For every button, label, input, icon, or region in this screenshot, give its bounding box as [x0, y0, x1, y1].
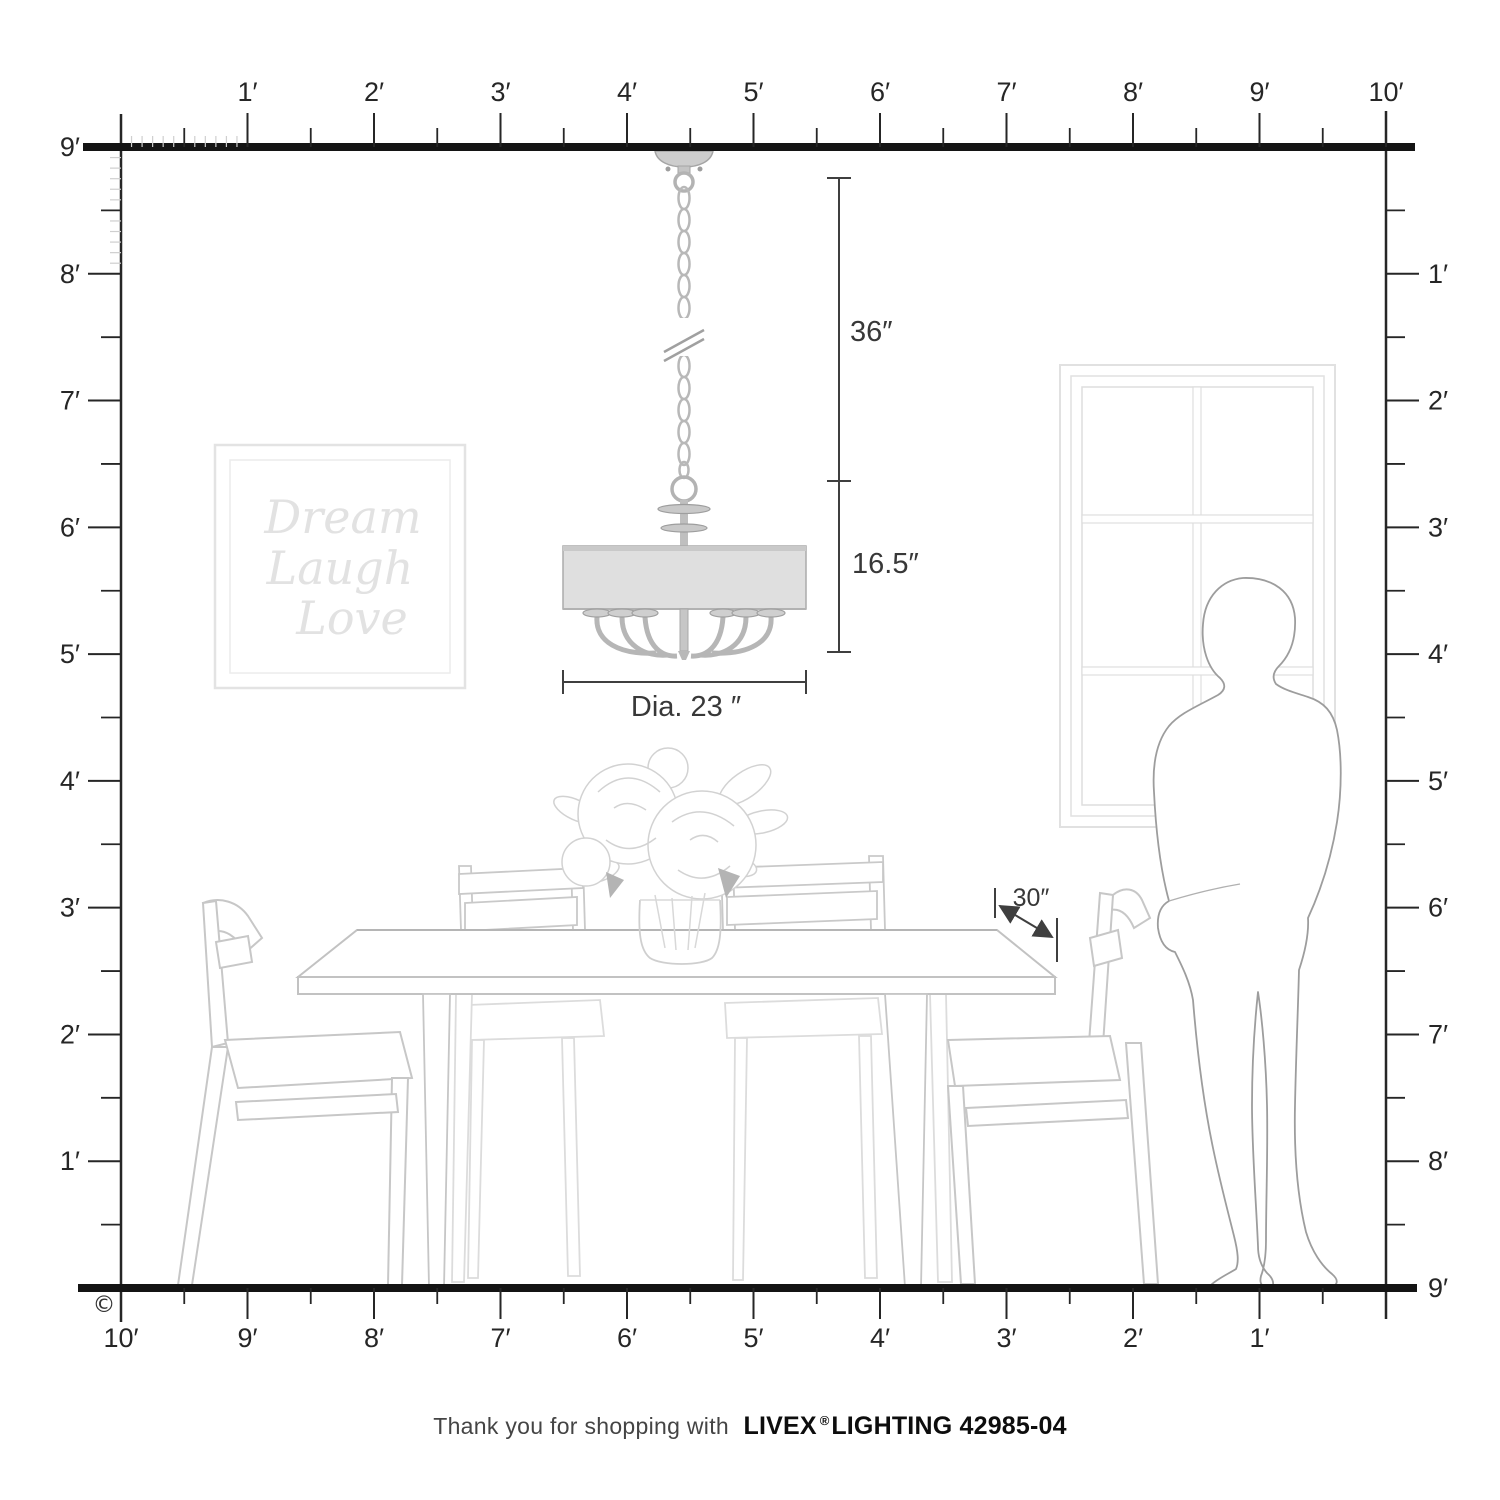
chair-seat: [225, 1032, 412, 1088]
footer-prefix: Thank you for shopping with: [433, 1413, 729, 1439]
chain-link: [679, 297, 690, 319]
chair-back-panel: [465, 897, 577, 931]
bobeche: [632, 609, 658, 617]
ruler-label: 9′: [60, 132, 80, 162]
ruler-label: 3′: [60, 893, 80, 923]
chair-leg: [859, 1036, 877, 1278]
ruler-label: 10′: [1368, 77, 1403, 107]
chair-seat: [468, 1000, 604, 1040]
ruler-label: 2′: [60, 1019, 80, 1049]
table-leg-rear-right: [930, 994, 952, 1282]
back-chair-right: [721, 856, 885, 1280]
chair-back-post: [1089, 893, 1113, 1045]
drum-shade: [563, 546, 806, 609]
wall-art-word-2: Laugh: [266, 541, 414, 595]
ruler-label: 2′: [1428, 386, 1448, 416]
window-rail-lower: [1082, 667, 1313, 675]
chain-link: [679, 253, 690, 275]
footer-brand: LIVEX: [743, 1412, 816, 1440]
registered-mark: ®: [820, 1413, 830, 1428]
ruler-label: 8′: [1123, 77, 1143, 107]
ruler-label: 1′: [1428, 259, 1448, 289]
ruler-label: 3′: [490, 77, 510, 107]
ruler-label: 1′: [1249, 1323, 1269, 1353]
ruler-label: 7′: [60, 386, 80, 416]
arm: [645, 617, 677, 656]
chair-headrest: [1110, 889, 1150, 928]
dining-table: [298, 930, 1055, 1287]
chair-back-panel: [727, 891, 877, 925]
chain-link: [679, 399, 690, 421]
ruler-label: 3′: [996, 1323, 1016, 1353]
ruler-label: 2′: [1123, 1323, 1143, 1353]
ruler-label: 6′: [1428, 893, 1448, 923]
chair-seat: [725, 998, 882, 1038]
chain-link: [679, 275, 690, 297]
chair-back-panel: [216, 936, 252, 968]
leaf-accent: [606, 872, 624, 898]
footer-note: Thank you for shopping with LIVEX®LIGHTI…: [0, 1412, 1500, 1441]
copyright-symbol: ©: [93, 1292, 116, 1318]
stem-disc-lower: [661, 524, 707, 532]
chain-link: [679, 355, 690, 377]
ruler-label: 4′: [617, 77, 637, 107]
scale-diagram: Dream Laugh Love: [0, 0, 1500, 1500]
ceiling-canopy: [655, 151, 713, 167]
wall-art-frame: Dream Laugh Love: [215, 445, 465, 688]
ruler-label: 5′: [743, 77, 763, 107]
ceiling-line: [83, 143, 1415, 151]
chandelier: [563, 151, 806, 660]
ruler-label: 1′: [60, 1146, 80, 1176]
bobeche: [757, 609, 785, 617]
table-top: [298, 930, 1055, 977]
diagram-svg: Dream Laugh Love: [0, 0, 1500, 1500]
dim-label-clearance: 30″: [1013, 884, 1050, 912]
drum-shade-top-band: [563, 546, 806, 551]
center-stem-lower: [680, 609, 688, 651]
flower-bloom-small: [562, 838, 610, 886]
ruler-label: 9′: [1249, 77, 1269, 107]
ruler-label: 2′: [364, 77, 384, 107]
ruler-label: 8′: [1428, 1146, 1448, 1176]
wall-art-word-1: Dream: [263, 490, 421, 544]
ruler-label: 6′: [60, 512, 80, 542]
flower-bloom-right: [648, 791, 756, 899]
stem-disc-upper: [658, 505, 710, 514]
chair-back-panel: [1090, 930, 1122, 966]
ruler-label: 8′: [364, 1323, 384, 1353]
ruler-label: 4′: [1428, 639, 1448, 669]
chair-stretcher: [236, 1094, 398, 1120]
table-leg-front-left: [423, 994, 450, 1287]
back-chairs: [459, 856, 885, 1280]
ruler-label: 8′: [60, 259, 80, 289]
ruler-label: 7′: [1428, 1019, 1448, 1049]
ruler-label: 1′: [237, 77, 257, 107]
dim-label-chain-drop: 36″: [850, 316, 893, 348]
stem-finial: [678, 651, 690, 660]
window-rail-upper: [1082, 515, 1313, 523]
ruler-label: 7′: [490, 1323, 510, 1353]
chain-link: [679, 209, 690, 231]
chain-link: [679, 231, 690, 253]
footer-product-code: LIGHTING 42985-04: [831, 1412, 1066, 1440]
ruler-label: 7′: [996, 77, 1016, 107]
chair-leg: [562, 1038, 580, 1276]
bobeche: [732, 609, 760, 617]
table-leg-front-right: [885, 994, 927, 1287]
ruler-label: 6′: [870, 77, 890, 107]
chair-leg: [733, 1038, 747, 1280]
ruler-label: 9′: [237, 1323, 257, 1353]
hang-loop: [675, 173, 693, 191]
ruler-label: 5′: [60, 639, 80, 669]
fixture-loop: [672, 477, 696, 501]
dim-label-diameter: Dia. 23 ″: [631, 691, 741, 723]
chain-link: [679, 377, 690, 399]
back-chair-left: [459, 862, 604, 1278]
dim-label-fixture-height: 16.5″: [852, 548, 919, 580]
ruler-label: 3′: [1428, 512, 1448, 542]
arm: [691, 617, 723, 656]
wall-art-word-3: Love: [295, 591, 407, 645]
ruler-label: 10′: [103, 1323, 138, 1353]
bobeche: [583, 609, 611, 617]
chair-stretcher: [966, 1100, 1128, 1126]
ruler-label: 4′: [870, 1323, 890, 1353]
floor-line: [78, 1284, 1417, 1292]
ruler-label: 5′: [743, 1323, 763, 1353]
canopy-screw: [666, 167, 671, 172]
table-apron: [298, 977, 1055, 994]
ruler-label: 5′: [1428, 766, 1448, 796]
chair-rear-leg: [1126, 1043, 1158, 1284]
ruler-label: 9′: [1428, 1273, 1448, 1303]
chair-seat: [948, 1036, 1120, 1086]
ruler-label: 4′: [60, 766, 80, 796]
chair-rear-leg: [178, 1047, 228, 1285]
chain-link: [679, 421, 690, 443]
canopy-screw: [698, 167, 703, 172]
ruler-label: 6′: [617, 1323, 637, 1353]
